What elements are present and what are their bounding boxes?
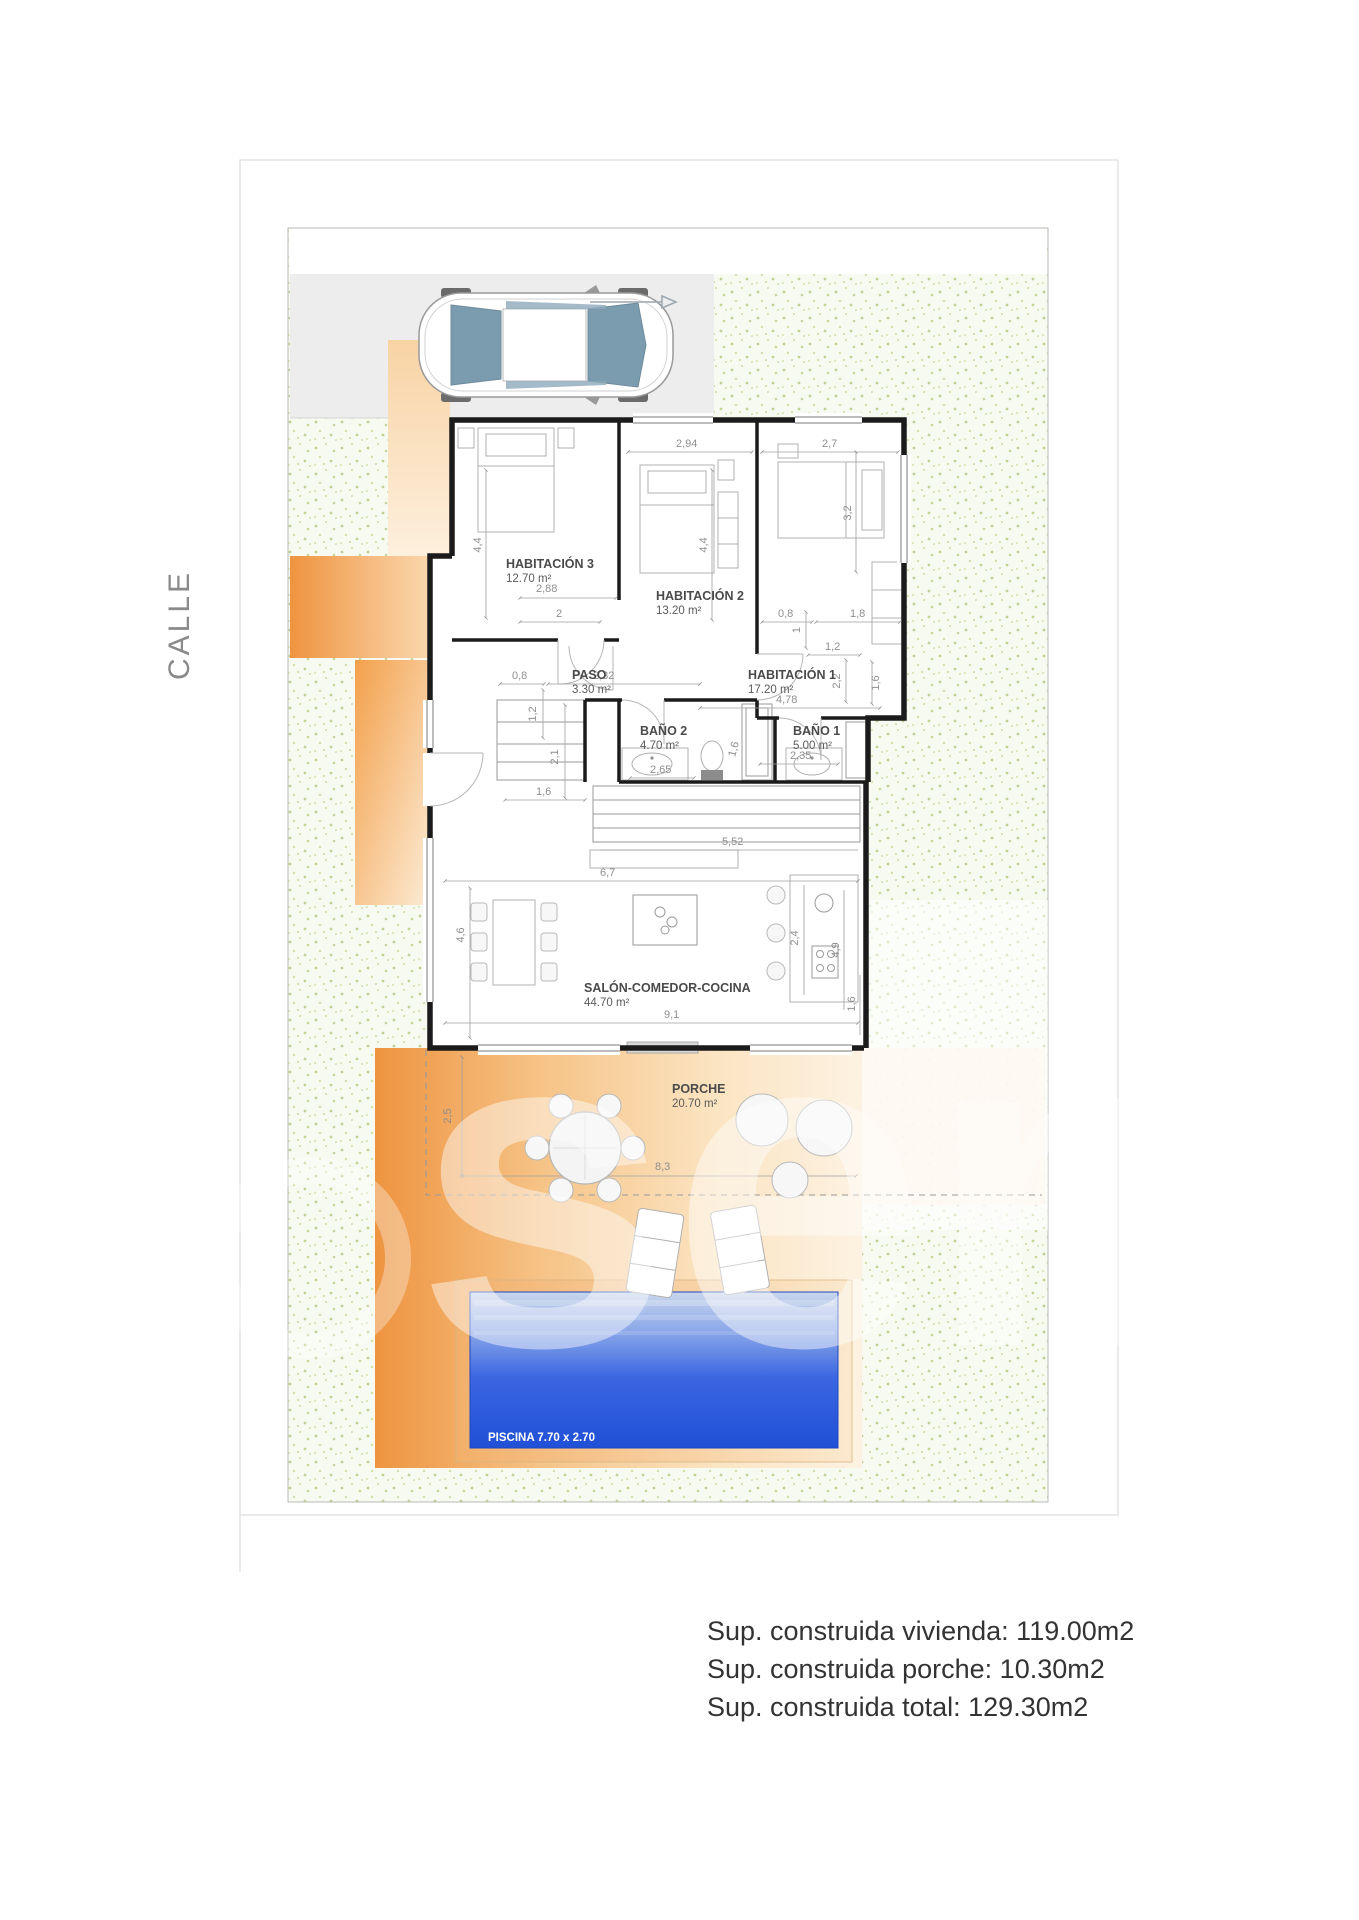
built-area-summary: Sup. construida vivienda: 119.00m2 Sup. … [707,1612,1134,1726]
room-area-paso: 3.30 m² [572,684,611,696]
windshield [588,303,646,387]
room-area-bano1: 5.00 m² [793,740,832,752]
room-label-bano2: BAÑO 2 [640,723,687,738]
entrance-path [290,556,430,658]
dim-label: 3,2 [842,505,854,520]
bed-hab2 [640,460,738,573]
room-label-hab3: HABITACIÓN 3 [506,556,594,571]
room-area-hab1: 17.20 m² [748,684,794,696]
watermark-text: sen [415,930,1208,1443]
dim-label: 2,94 [676,438,697,450]
dim-label: 2,7 [822,438,837,450]
summary-line-porche: Sup. construida porche: 10.30m2 [707,1650,1134,1688]
room-label-hab1: HABITACIÓN 1 [748,667,836,682]
dim-label: 0,8 [778,608,793,620]
car-roof [503,309,586,381]
dim-label: 1,2 [825,641,840,653]
dim-label: 0,8 [512,670,527,682]
room-area-hab3: 12.70 m² [506,573,552,585]
dim-label: 4,4 [698,537,710,552]
dim-label: 1 [791,627,803,633]
dim-label: 2 [556,608,562,620]
dim-label: 1,6 [536,786,551,798]
dim-label: 4,4 [472,537,484,552]
summary-line-vivienda: Sup. construida vivienda: 119.00m2 [707,1612,1134,1650]
west-terrace [355,660,430,905]
summary-line-total: Sup. construida total: 129.30m2 [707,1688,1134,1726]
sideboard [590,850,738,868]
floor-plan: PISCINA 7.70 x 2.70 [0,0,1359,1920]
dim-label: 1,8 [850,608,865,620]
dim-label: 2,1 [549,749,561,764]
floor-plan-page: CALLE [0,0,1359,1920]
room-area-bano2: 4.70 m² [640,740,679,752]
dim-label: 5,52 [722,836,743,848]
room-label-paso: PASO [572,668,607,682]
room-label-bano1: BAÑO 1 [793,723,840,738]
dim-label: 1,6 [870,675,882,690]
room-area-hab2: 13.20 m² [656,605,702,617]
car-illustration [419,285,676,405]
rear-window [451,305,501,385]
toilet [701,741,723,771]
dim-label: 2,65 [650,764,671,776]
dim-label: 1,2 [527,706,539,721]
room-label-hab2: HABITACIÓN 2 [656,588,744,603]
dim-label: 6,7 [600,867,615,879]
